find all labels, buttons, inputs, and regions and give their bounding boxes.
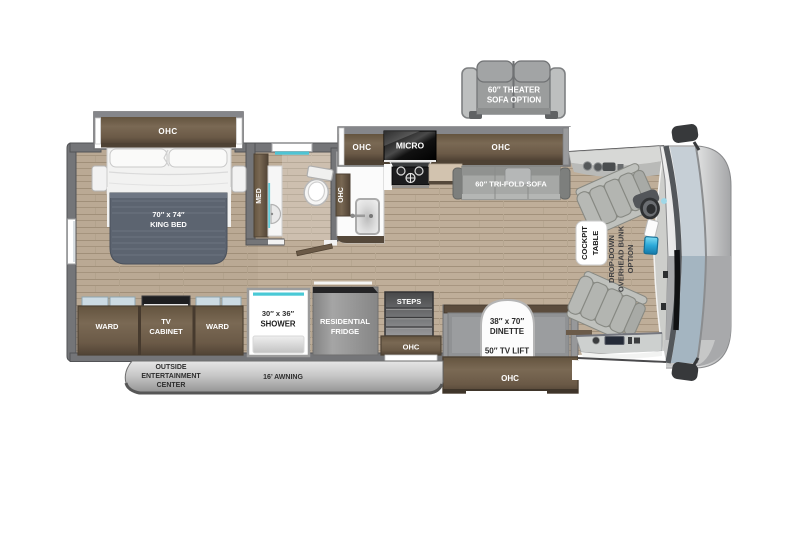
svg-text:CENTER: CENTER (157, 382, 186, 389)
svg-text:OHC: OHC (158, 127, 177, 136)
svg-text:OHC: OHC (338, 187, 345, 203)
svg-text:OHC: OHC (353, 143, 372, 152)
svg-text:ENTERTAINMENT: ENTERTAINMENT (141, 373, 201, 380)
svg-text:SOFA OPTION: SOFA OPTION (487, 96, 542, 105)
svg-text:DINETTE: DINETTE (490, 327, 525, 336)
svg-text:30″ x 36″: 30″ x 36″ (262, 309, 295, 318)
svg-text:60″ TRI-FOLD SOFA: 60″ TRI-FOLD SOFA (475, 180, 547, 189)
svg-text:CABINET: CABINET (149, 327, 183, 336)
svg-text:DROP-DOWN: DROP-DOWN (607, 235, 616, 283)
svg-text:TABLE: TABLE (591, 231, 600, 255)
svg-text:60″ THEATER: 60″ THEATER (488, 86, 540, 95)
svg-text:50″ TV LIFT: 50″ TV LIFT (485, 347, 529, 356)
svg-text:TV: TV (161, 317, 171, 326)
svg-text:OHC: OHC (403, 343, 420, 352)
svg-text:MICRO: MICRO (396, 141, 425, 151)
svg-text:SHOWER: SHOWER (260, 320, 295, 329)
svg-text:70″ x 74″: 70″ x 74″ (152, 210, 185, 219)
svg-text:OUTSIDE: OUTSIDE (155, 364, 186, 371)
svg-text:OHC: OHC (492, 143, 511, 152)
svg-text:38″ x 70″: 38″ x 70″ (490, 317, 525, 326)
svg-text:RESIDENTIAL: RESIDENTIAL (320, 317, 370, 326)
svg-text:WARD: WARD (206, 322, 229, 331)
svg-text:OPTION: OPTION (626, 245, 635, 274)
svg-text:KING BED: KING BED (150, 220, 187, 229)
svg-text:WARD: WARD (96, 322, 119, 331)
svg-text:OHC: OHC (501, 374, 519, 383)
svg-text:OVERHEAD BUNK: OVERHEAD BUNK (617, 225, 626, 292)
svg-text:16’ AWNING: 16’ AWNING (263, 374, 303, 381)
svg-text:STEPS: STEPS (397, 297, 422, 306)
svg-text:FRIDGE: FRIDGE (331, 327, 359, 336)
svg-text:MED: MED (256, 188, 263, 204)
svg-text:COCKPIT: COCKPIT (580, 226, 589, 260)
